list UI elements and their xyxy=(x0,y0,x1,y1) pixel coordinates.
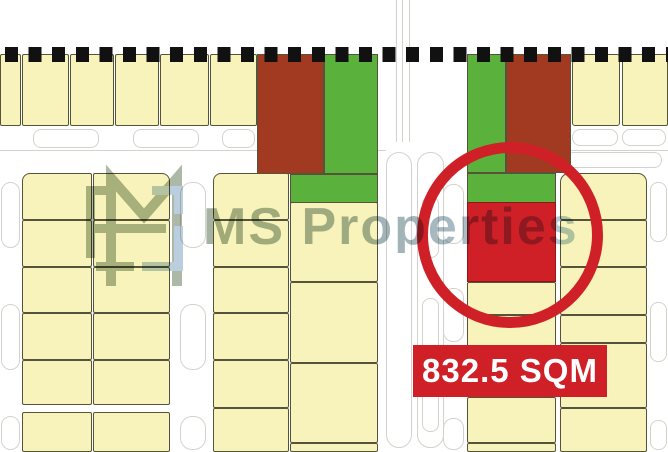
parcel xyxy=(22,54,69,126)
watermark-brand-text: MS Properties xyxy=(203,201,579,253)
parcel xyxy=(22,267,92,313)
parcel xyxy=(467,397,556,443)
road-line xyxy=(409,0,410,142)
parcel xyxy=(213,408,289,452)
parcel xyxy=(0,54,21,126)
parcel xyxy=(70,54,114,126)
driveway-outline xyxy=(33,129,99,148)
parcel xyxy=(213,313,289,360)
parcel xyxy=(115,54,159,126)
reserved-plot xyxy=(257,54,324,174)
parcel xyxy=(22,173,92,220)
parcel xyxy=(93,360,170,405)
driveway-outline xyxy=(386,152,412,448)
area-label: 832.5 SQM xyxy=(413,345,607,397)
parcel xyxy=(290,443,378,452)
parcel xyxy=(290,282,378,363)
driveway-outline xyxy=(1,182,20,248)
plot-map: MS Properties 832.5 SQM xyxy=(0,0,668,452)
parcel xyxy=(160,54,209,126)
parcel xyxy=(290,363,378,443)
parcel xyxy=(560,315,647,343)
road-line xyxy=(556,150,668,151)
boundary-marks xyxy=(5,47,668,62)
driveway-outline xyxy=(180,304,206,370)
parcel xyxy=(213,360,289,408)
road-line xyxy=(402,0,403,142)
parcel xyxy=(560,408,647,452)
driveway-outline xyxy=(133,129,199,148)
driveway-outline xyxy=(222,129,255,148)
parcel xyxy=(22,360,92,405)
parcel xyxy=(93,313,170,360)
parcel xyxy=(213,267,289,313)
parcel xyxy=(22,412,92,452)
area-label-text: 832.5 SQM xyxy=(422,352,598,390)
green-area xyxy=(324,54,378,174)
driveway-outline xyxy=(180,416,206,450)
road-line xyxy=(396,0,397,142)
parcel xyxy=(572,54,620,126)
driveway-outline xyxy=(622,129,666,146)
driveway-outline xyxy=(650,182,667,242)
brand-logo-icon xyxy=(86,164,194,290)
driveway-outline xyxy=(572,129,618,146)
parcel xyxy=(22,220,92,267)
driveway-outline xyxy=(1,416,20,450)
driveway-outline xyxy=(650,420,667,450)
parcel xyxy=(22,313,92,360)
driveway-outline xyxy=(650,302,667,362)
parcel xyxy=(467,443,556,452)
parcel xyxy=(210,54,257,126)
driveway-outline xyxy=(443,418,464,450)
parcel xyxy=(93,412,170,452)
driveway-outline xyxy=(1,304,20,370)
driveway-outline xyxy=(566,152,662,168)
parcel xyxy=(622,54,668,126)
